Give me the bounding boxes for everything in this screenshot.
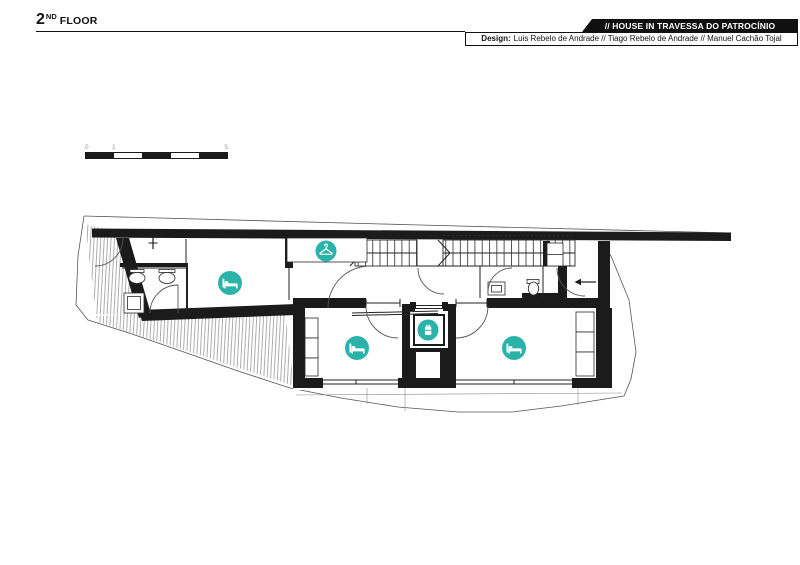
bed-icon [345, 336, 369, 360]
floor-plan [0, 0, 800, 565]
bed-icon [218, 271, 242, 295]
stairs [350, 236, 575, 267]
hatch-slope-wedge [96, 310, 294, 386]
sheet: { "header": { "floor_number": "2", "floo… [0, 0, 800, 565]
projection-lines [296, 388, 622, 411]
elevator-icon [418, 320, 439, 341]
bed-icon [502, 336, 526, 360]
hanger-icon [316, 241, 337, 262]
